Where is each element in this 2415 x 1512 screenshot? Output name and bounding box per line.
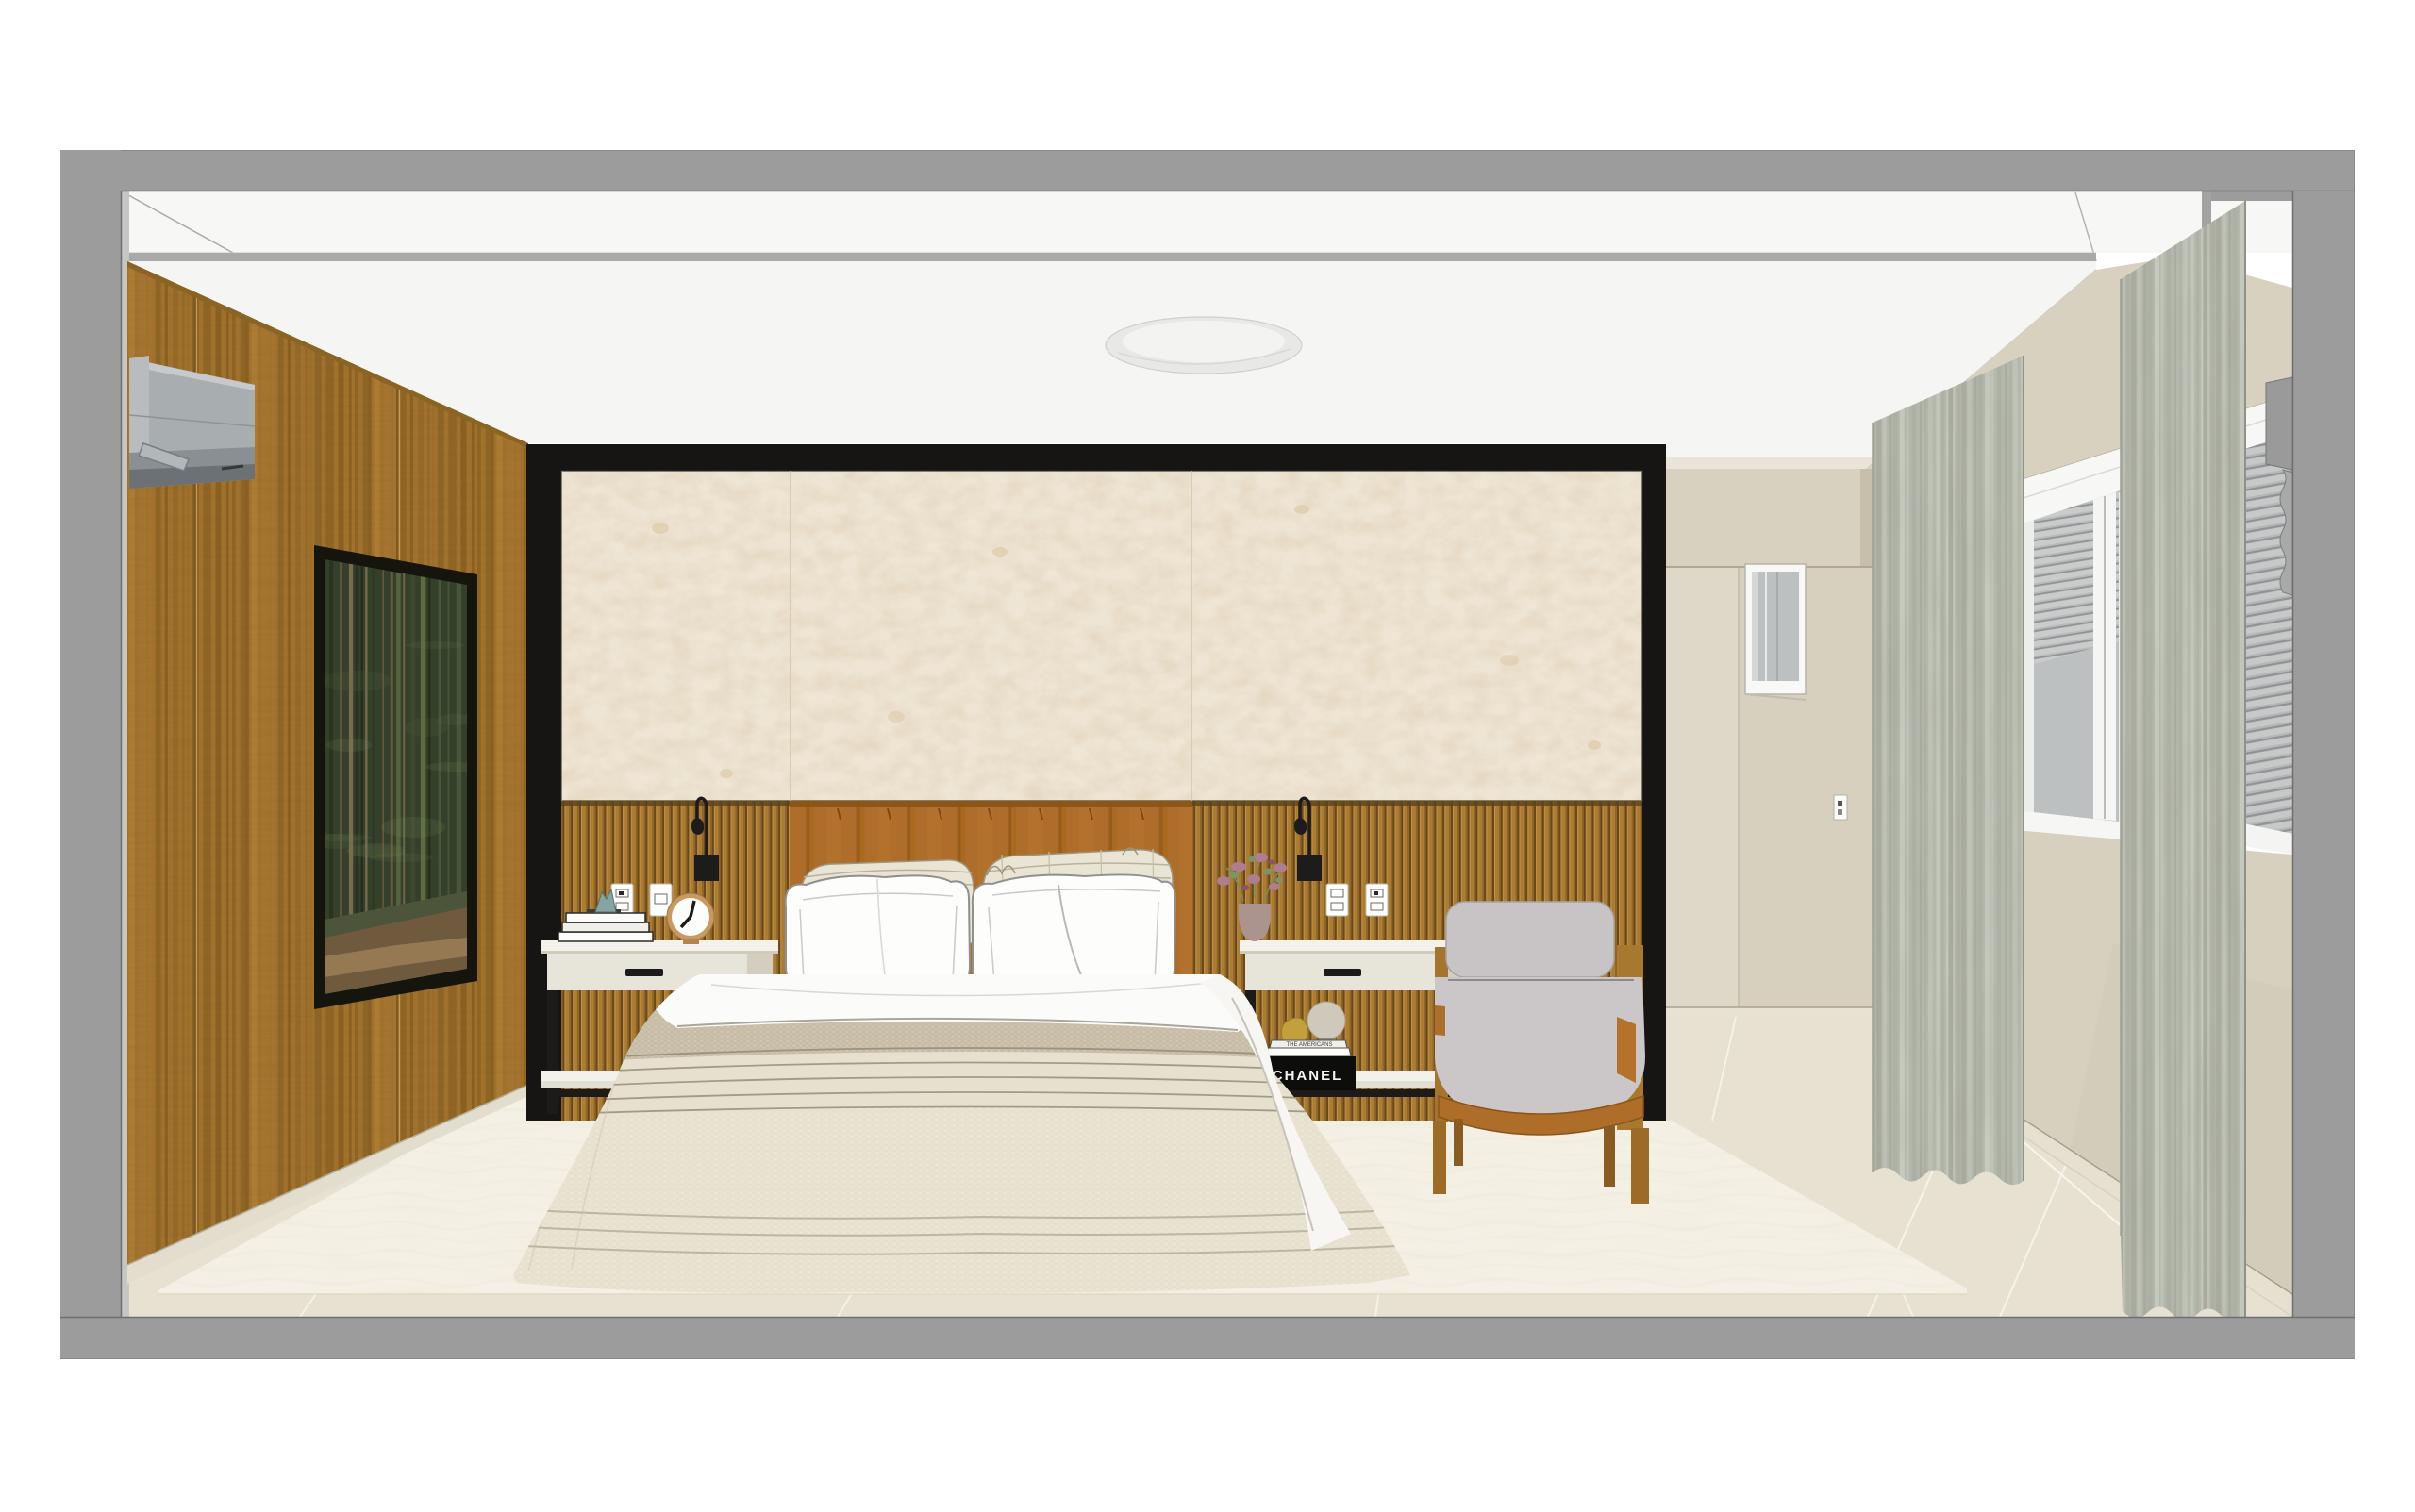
svg-text:THE AMERICANS: THE AMERICANS [1286,1042,1332,1048]
svg-text:CHANEL: CHANEL [1273,1068,1343,1084]
